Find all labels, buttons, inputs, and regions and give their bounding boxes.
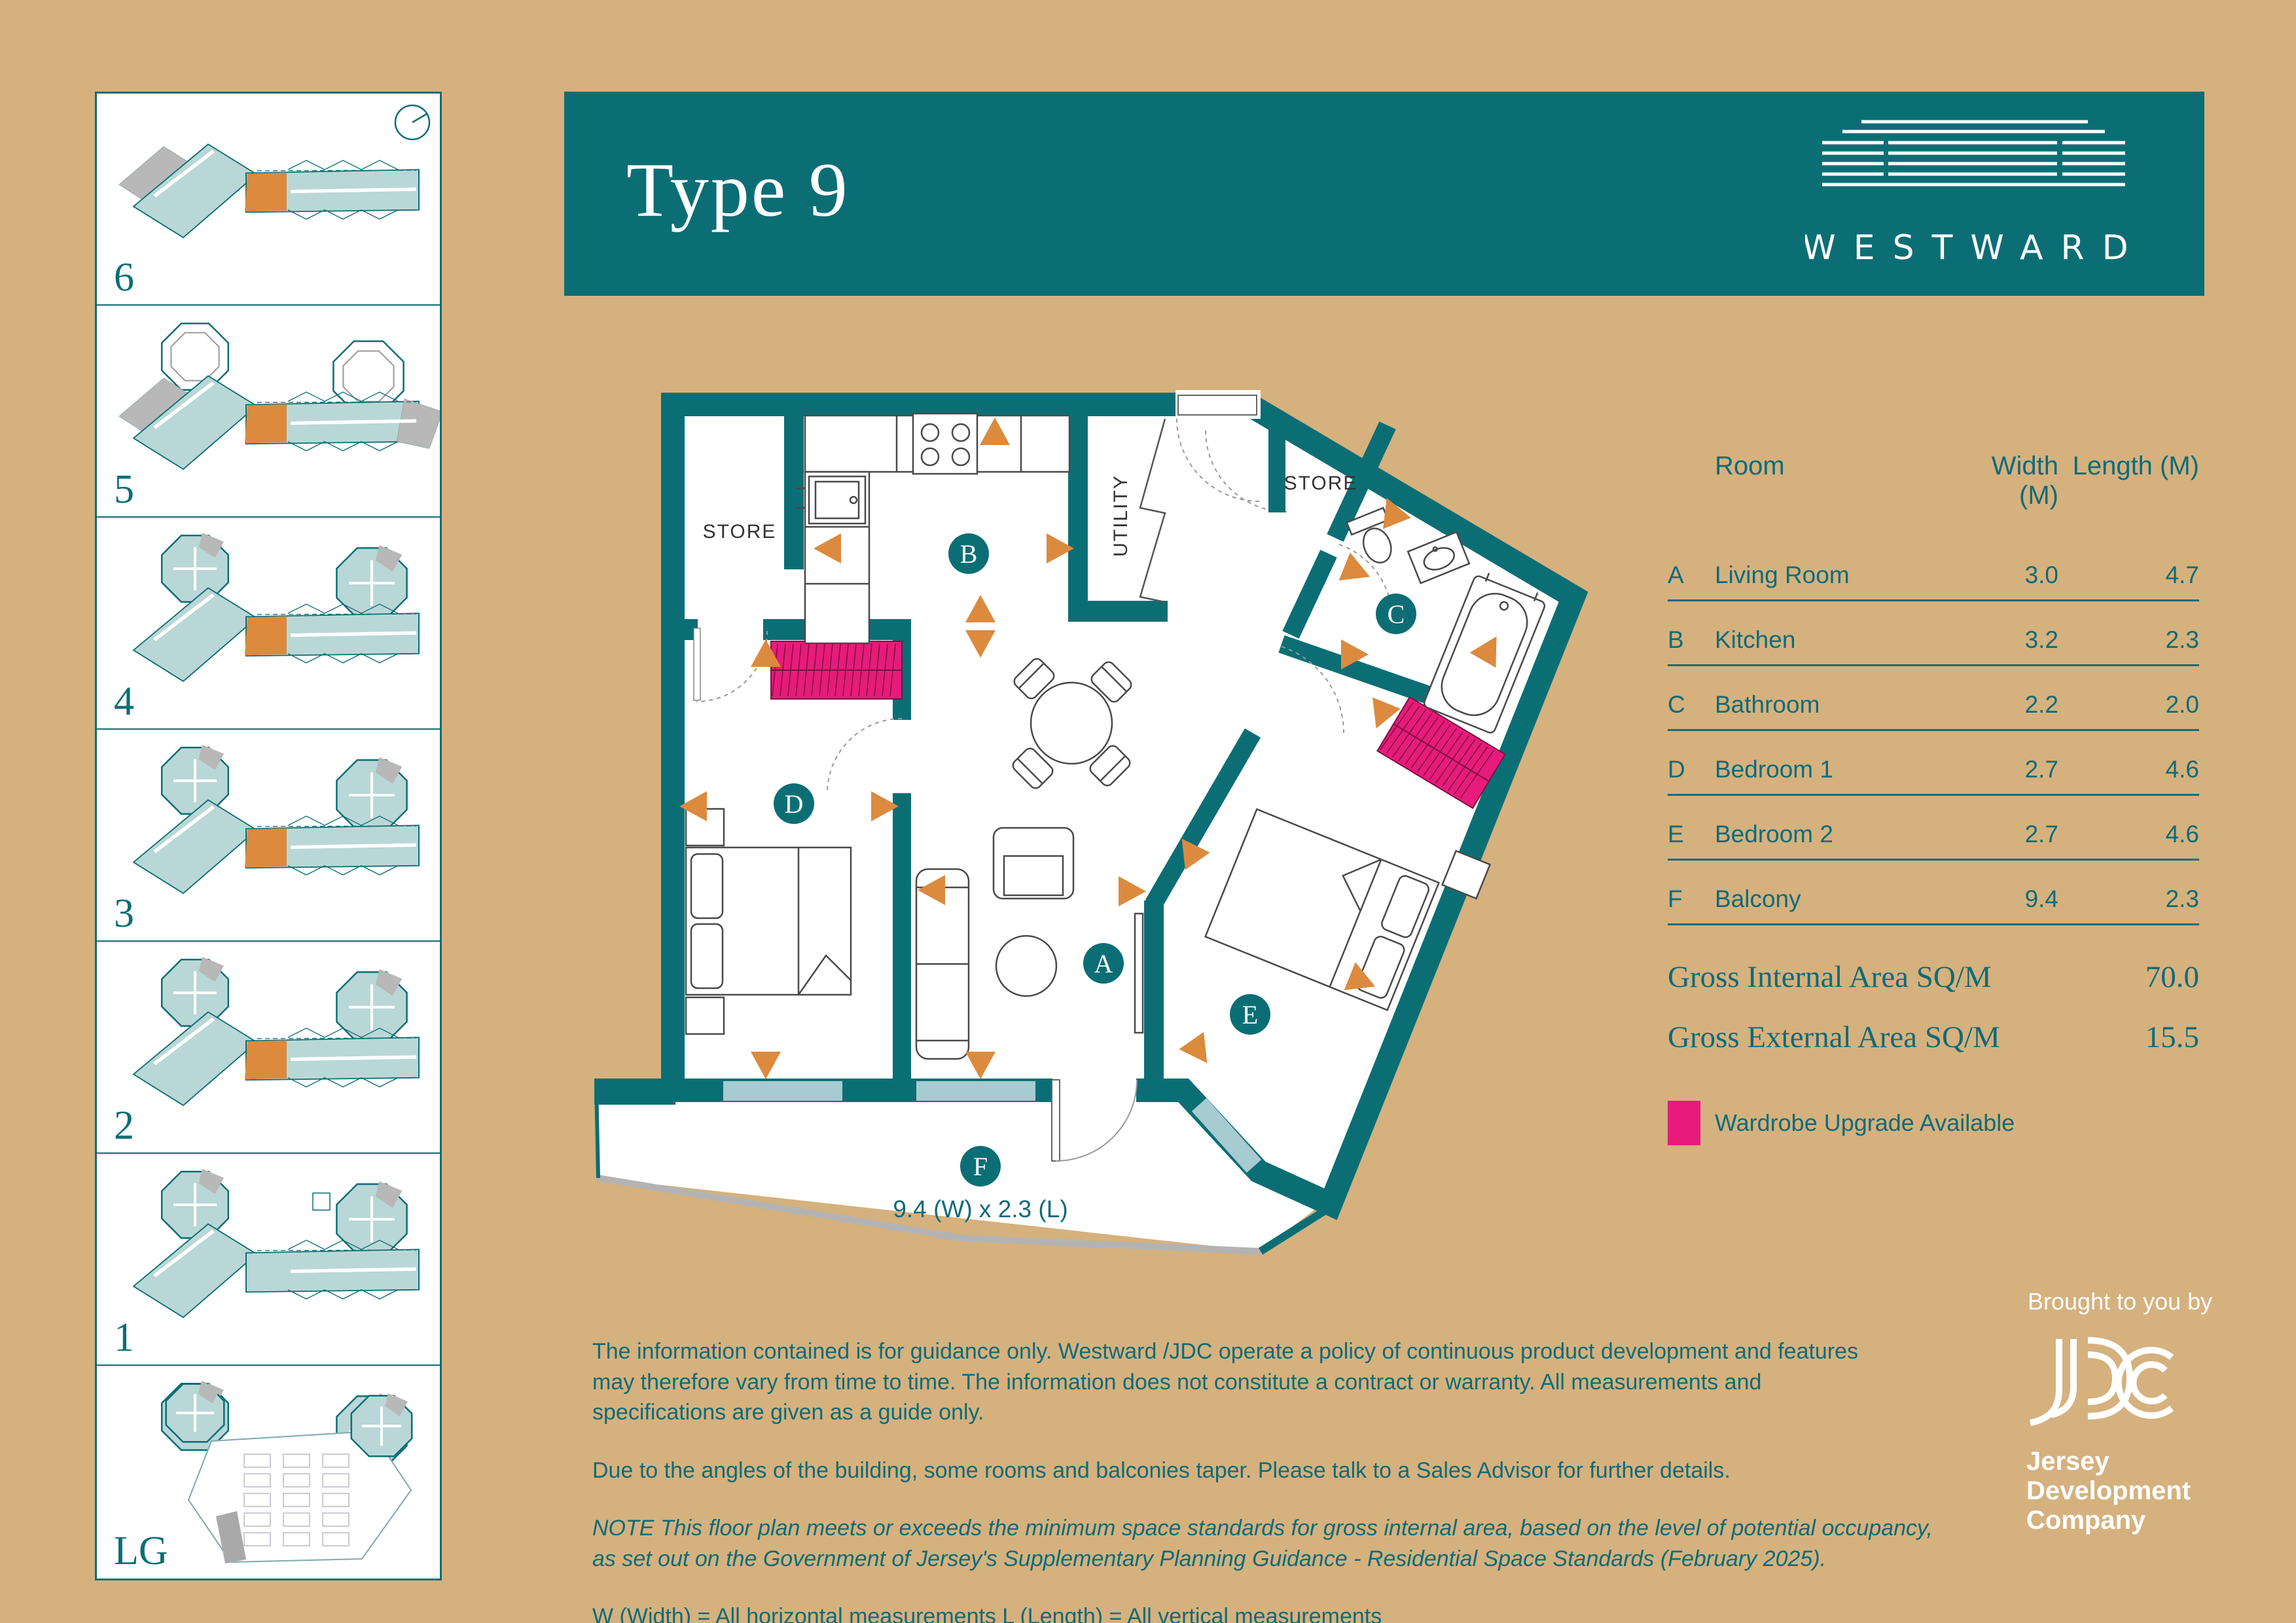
gross-external-label: Gross External Area SQ/M (1668, 1020, 2000, 1055)
col-width: Width (M) (1954, 452, 2058, 510)
room-table: Room Width (M) Length (M) ALiving Room3.… (1668, 452, 2199, 1145)
row-key: A (1668, 562, 1715, 589)
balcony-door-leaf (1052, 1080, 1060, 1161)
floor-cell-6: 6 (97, 94, 440, 306)
row-width: 3.0 (1954, 562, 2058, 589)
store2-label: STORE (1284, 473, 1358, 494)
wardrobe-legend-text: Wardrobe Upgrade Available (1715, 1109, 2015, 1137)
jdc-logo-strokes (2030, 1339, 2172, 1423)
row-key: C (1668, 691, 1715, 719)
jdc-name-line3: Company (2026, 1506, 2186, 1535)
floor-thumbnail (97, 306, 440, 516)
gross-internal-line: Gross Internal Area SQ/M 70.0 (1668, 959, 2199, 995)
wardrobe-legend: Wardrobe Upgrade Available (1668, 1101, 2199, 1145)
wardrobe-swatch (1668, 1101, 1700, 1145)
utility-label: UTILITY (1110, 474, 1132, 557)
row-name: Kitchen (1715, 626, 1954, 654)
floor-thumbnail (97, 1154, 440, 1364)
floor-key-sidebar: 654321LG (95, 92, 442, 1580)
store1-label: STORE (703, 521, 777, 543)
jdc-name-line2: Development (2026, 1476, 2186, 1506)
row-width: 2.7 (1954, 756, 2058, 783)
floor-thumbnail (97, 94, 440, 304)
row-width: 2.7 (1954, 821, 2058, 848)
row-key: D (1668, 756, 1715, 783)
table-row: BKitchen3.22.3 (1668, 601, 2199, 666)
row-name: Living Room (1715, 562, 1954, 589)
floor-cell-1: 1 (97, 1154, 440, 1366)
col-room: Room (1715, 452, 1954, 510)
disclaimer-para1: The information contained is for guidanc… (592, 1336, 1895, 1428)
row-width: 2.2 (1954, 691, 2058, 719)
table-header: Room Width (M) Length (M) (1668, 452, 2199, 537)
westward-logo: WESTWARD (1805, 114, 2145, 281)
row-name: Balcony (1715, 885, 1954, 913)
floor-label: 6 (114, 257, 134, 298)
westward-logo-lines (1822, 122, 2125, 185)
table-row: ALiving Room3.04.7 (1668, 537, 2199, 601)
measurement-key: W (Width) = All horizontal measurements … (592, 1601, 1941, 1623)
gross-external-line: Gross External Area SQ/M 15.5 (1668, 1020, 2199, 1055)
disclaimer-block: The information contained is for guidanc… (592, 1336, 1941, 1623)
row-length: 2.0 (2058, 691, 2199, 719)
balcony-dimension: 9.4 (W) x 2.3 (L) (893, 1196, 1067, 1222)
row-length: 4.7 (2058, 562, 2199, 589)
jdc-tagline: Brought to you by (2028, 1288, 2186, 1315)
floor-cell-3: 3 (97, 730, 440, 942)
table-row: CBathroom2.22.0 (1668, 666, 2199, 731)
room-label-a: A (1094, 949, 1113, 978)
floor-cell-4: 4 (97, 518, 440, 730)
jdc-logo (2025, 1334, 2186, 1435)
header-bar: Type 9 WESTWARD (564, 92, 2204, 296)
row-name: Bedroom 2 (1715, 821, 1954, 848)
floor-plan: ABCDEF STORE UTILITY STORE 9.4 (W) x 2.3… (576, 366, 1623, 1296)
table-row: DBedroom 12.74.6 (1668, 731, 2199, 796)
row-length: 4.6 (2058, 756, 2199, 783)
floor-thumbnail (97, 942, 440, 1152)
room-label-f: F (973, 1152, 988, 1181)
wall-balcony-left (594, 1079, 675, 1105)
row-length: 4.6 (2058, 821, 2199, 848)
jdc-name-line1: Jersey (2026, 1447, 2186, 1476)
gross-external-value: 15.5 (2145, 1020, 2199, 1055)
row-width: 9.4 (1954, 885, 2058, 913)
row-key: E (1668, 821, 1715, 848)
jdc-block: Brought to you by Jersey Development Com… (2016, 1288, 2186, 1535)
disclaimer-note: NOTE This floor plan meets or exceeds th… (592, 1513, 1941, 1574)
col-length: Length (M) (2058, 452, 2199, 510)
room-label-d: D (785, 789, 804, 819)
floor-cell-5: 5 (97, 306, 440, 518)
window-glazing-living (916, 1081, 1035, 1101)
row-name: Bathroom (1715, 691, 1954, 719)
row-key: F (1668, 885, 1715, 913)
floor-label: 2 (114, 1105, 134, 1146)
floor-label: LG (114, 1531, 168, 1571)
table-row: FBalcony9.42.3 (1668, 861, 2199, 925)
row-width: 3.2 (1954, 626, 2058, 654)
store-door-leaf (694, 628, 700, 700)
page-title: Type 9 (626, 146, 850, 235)
row-key: B (1668, 626, 1715, 654)
row-name: Bedroom 1 (1715, 756, 1954, 783)
westward-wordmark: WESTWARD (1805, 228, 2145, 268)
floor-thumbnail (97, 730, 440, 940)
room-label-b: B (960, 539, 978, 569)
brochure-page: 654321LG Type 9 WESTWARD (0, 0, 2296, 1623)
floor-cell-2: 2 (97, 942, 440, 1154)
floor-cell-LG: LG (97, 1366, 440, 1578)
row-length: 2.3 (2058, 885, 2199, 913)
disclaimer-para2: Due to the angles of the building, some … (592, 1455, 1941, 1486)
floor-label: 1 (114, 1317, 134, 1358)
balcony-door-opening (1052, 1077, 1136, 1106)
room-label-e: E (1242, 1000, 1258, 1029)
gross-internal-label: Gross Internal Area SQ/M (1668, 959, 1992, 995)
floor-label: 4 (114, 681, 134, 722)
wardrobe-upgrade-1 (771, 641, 902, 699)
entrance-door-leaf (1178, 395, 1257, 415)
floor-label: 3 (114, 893, 134, 934)
floor-label: 5 (114, 469, 134, 510)
row-length: 2.3 (2058, 626, 2199, 654)
window-glazing-d (723, 1081, 842, 1101)
floor-thumbnail (97, 518, 440, 728)
gross-internal-value: 70.0 (2145, 959, 2199, 995)
table-row: EBedroom 22.74.6 (1668, 796, 2199, 861)
room-label-c: C (1388, 599, 1405, 629)
